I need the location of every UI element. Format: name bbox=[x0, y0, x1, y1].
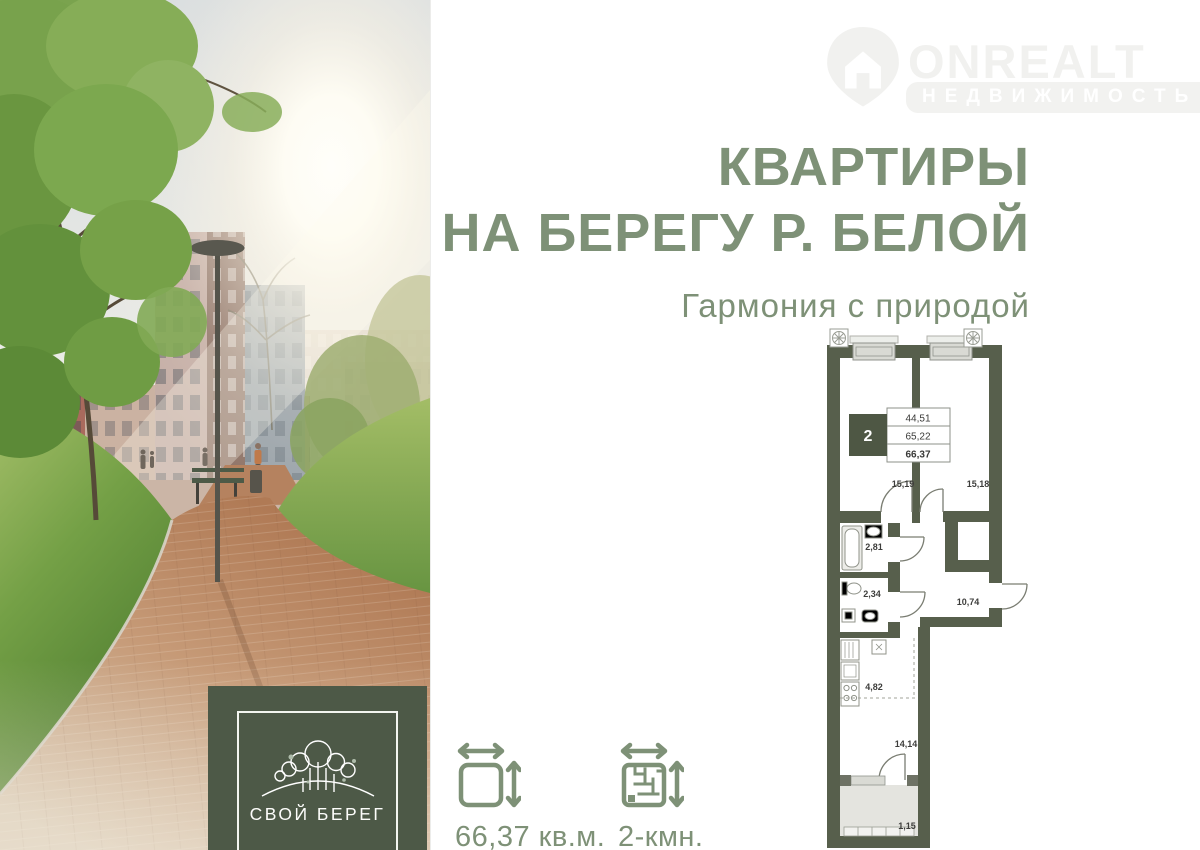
metric-area: 66,37 кв.м. bbox=[455, 741, 605, 850]
toilet-fixtures bbox=[842, 582, 878, 622]
trash-bin bbox=[250, 470, 262, 493]
label-hall: 10,74 bbox=[957, 597, 980, 607]
label-kitchen: 4,82 bbox=[865, 682, 883, 692]
metric-area-label: 66,37 кв.м. bbox=[455, 821, 605, 850]
map-pin-house-icon bbox=[822, 24, 904, 112]
page-title-line2: НА БЕРЕГУ Р. БЕЛОЙ bbox=[441, 200, 1030, 266]
info-area-living: 44,51 bbox=[905, 414, 930, 425]
label-room1: 15,19 bbox=[892, 479, 915, 489]
label-living: 14,14 bbox=[895, 739, 918, 749]
area-dimensions-icon bbox=[455, 741, 521, 813]
apartment-info-box: 2 44,51 65,22 66,37 bbox=[849, 408, 950, 462]
title-block: КВАРТИРЫ НА БЕРЕГУ Р. БЕЛОЙ Гармония с п… bbox=[441, 134, 1030, 325]
floor-plan: 2 44,51 65,22 66,37 15,19 15,18 2,81 2,3… bbox=[820, 326, 1040, 850]
metric-rooms: 2-кмн. bbox=[618, 741, 703, 850]
watermark-tagline: НЕДВИЖИМОСТЬ bbox=[906, 82, 1200, 113]
label-balcony: 1,15 bbox=[898, 821, 916, 831]
label-room2: 15,18 bbox=[967, 479, 990, 489]
kitchen-fixtures bbox=[840, 638, 918, 706]
info-rooms-count: 2 bbox=[864, 428, 873, 445]
info-area-no-balcony: 65,22 bbox=[905, 432, 930, 443]
brand-badge: СВОЙ БЕРЕГ bbox=[208, 686, 427, 850]
metric-rooms-label: 2-кмн. bbox=[618, 821, 703, 850]
room-count-icon bbox=[618, 741, 684, 813]
label-bathroom: 2,81 bbox=[865, 542, 883, 552]
page-title-line1: КВАРТИРЫ bbox=[441, 134, 1030, 200]
badge-name: СВОЙ БЕРЕГ bbox=[208, 804, 427, 825]
watermark-brand: ONREALT bbox=[908, 34, 1146, 89]
label-toilet: 2,34 bbox=[863, 589, 881, 599]
page-subtitle: Гармония с природой bbox=[441, 287, 1030, 325]
info-area-total: 66,37 bbox=[905, 450, 930, 461]
real-estate-flyer: СВОЙ БЕРЕГ ONREALT НЕДВИЖИМОСТЬ КВАРТИРЫ… bbox=[0, 0, 1200, 850]
tree-logo-icon bbox=[258, 738, 378, 800]
